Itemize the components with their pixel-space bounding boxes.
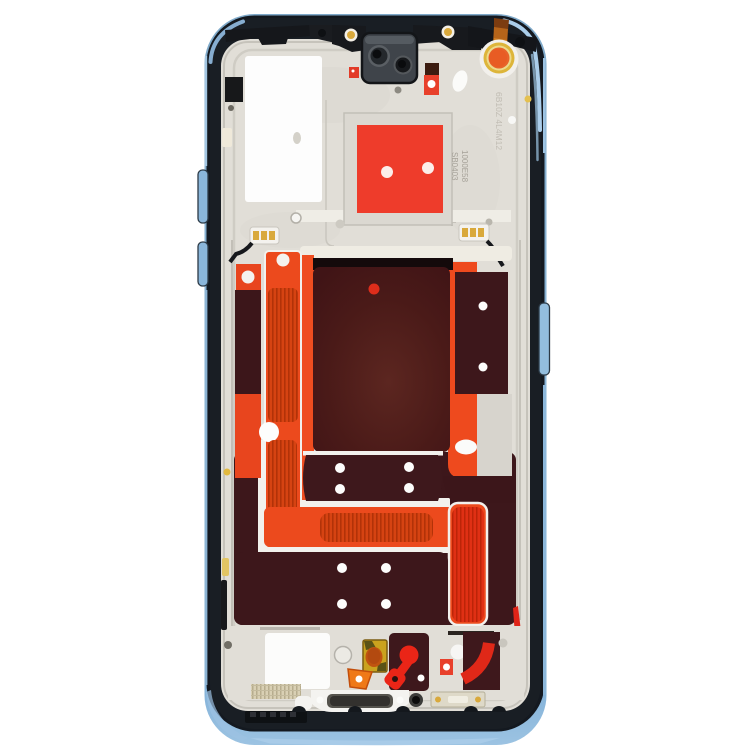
svg-text:6B10Z 4L4M12: 6B10Z 4L4M12: [494, 92, 504, 150]
svg-text:1000E58: 1000E58: [460, 150, 469, 183]
svg-text:SB0403: SB0403: [450, 152, 459, 181]
